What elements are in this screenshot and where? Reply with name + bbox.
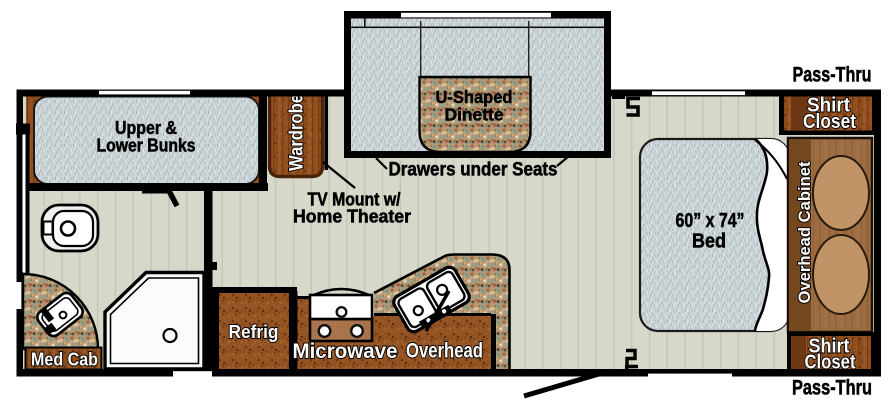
svg-text:Microwave: Microwave [293,340,398,363]
svg-text:Drawers under Seats: Drawers under Seats [389,160,558,181]
svg-text:Pass-Thru: Pass-Thru [792,377,872,400]
svg-text:60” x 74”: 60” x 74” [676,210,745,232]
svg-text:Closet: Closet [803,111,856,133]
svg-text:Home Theater: Home Theater [293,207,411,227]
svg-text:Refrig: Refrig [229,321,279,342]
svg-text:Med Cab: Med Cab [31,349,98,370]
svg-text:Wardrobe: Wardrobe [286,94,308,171]
svg-text:Bed: Bed [692,231,726,253]
svg-text:Overhead: Overhead [406,340,483,363]
svg-text:Pass-Thru: Pass-Thru [793,64,872,87]
svg-text:Dinette: Dinette [445,105,504,125]
svg-text:Lower Bunks: Lower Bunks [97,135,196,156]
svg-text:Overhead Cabinet: Overhead Cabinet [796,161,814,303]
